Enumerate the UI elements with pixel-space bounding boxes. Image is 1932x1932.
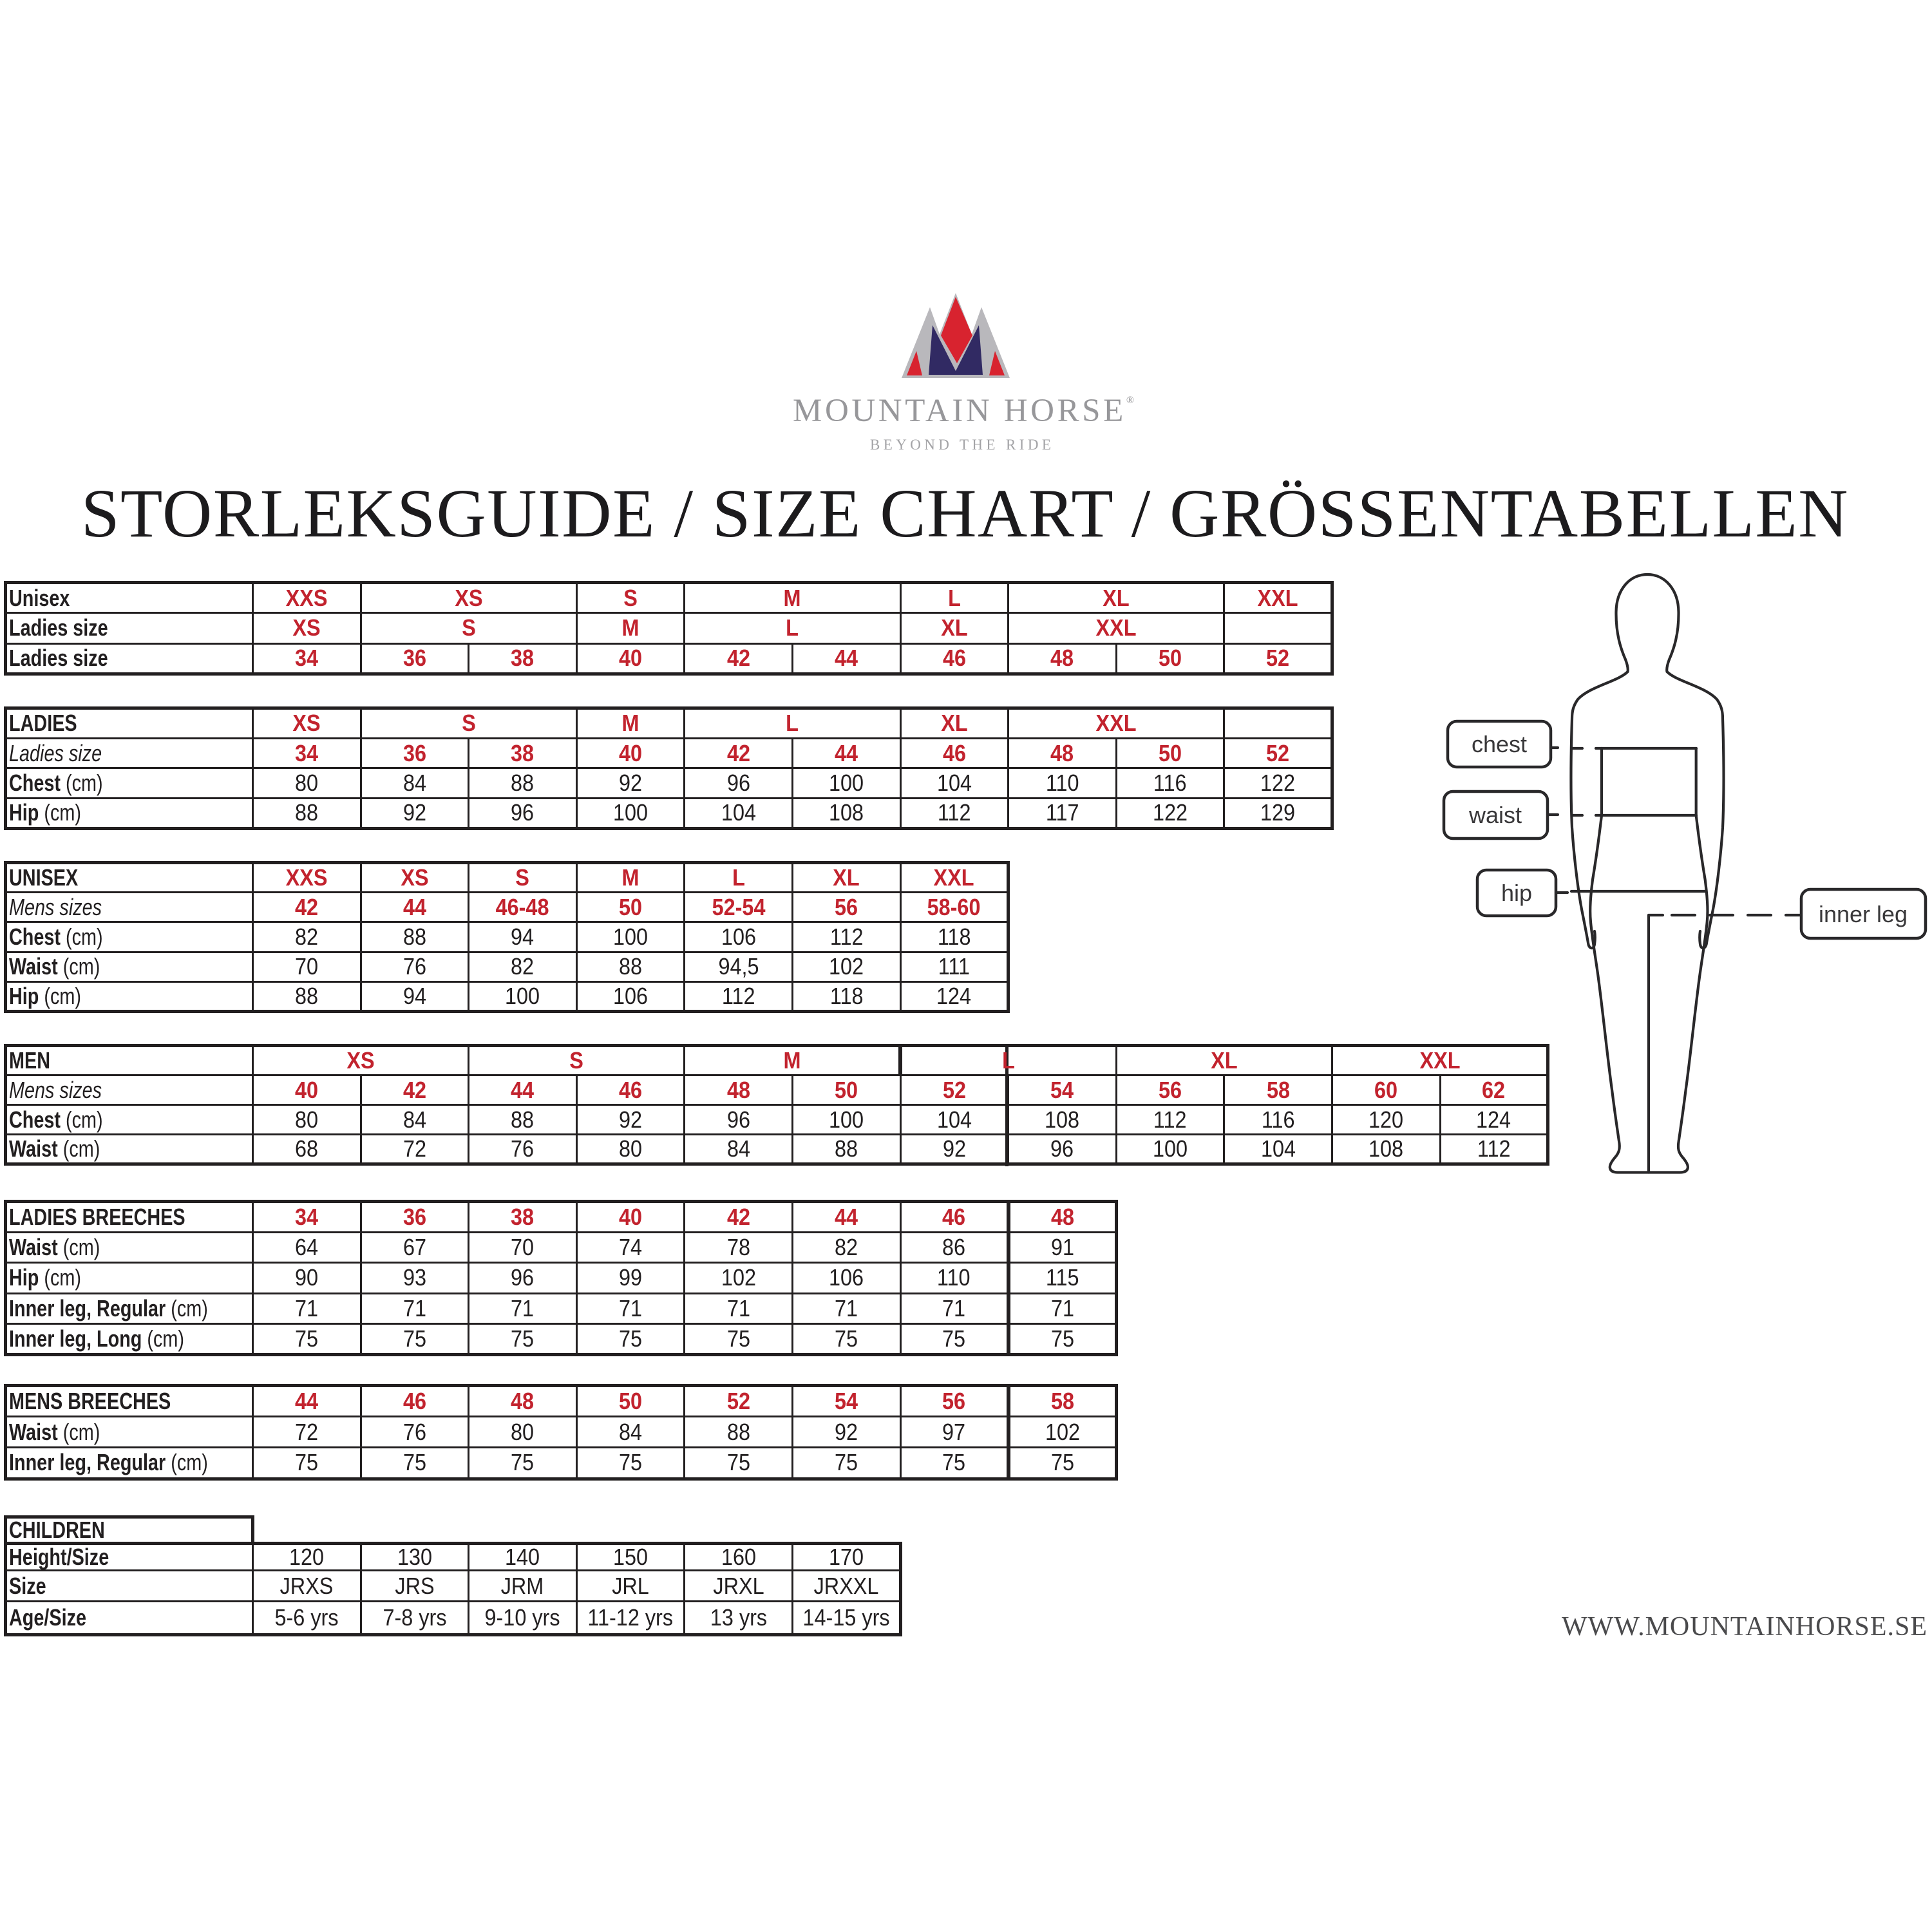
svg-text:hip: hip [1501, 880, 1532, 906]
svg-text:inner leg: inner leg [1819, 901, 1908, 927]
svg-text:chest: chest [1472, 731, 1527, 757]
svg-text:waist: waist [1468, 802, 1522, 828]
